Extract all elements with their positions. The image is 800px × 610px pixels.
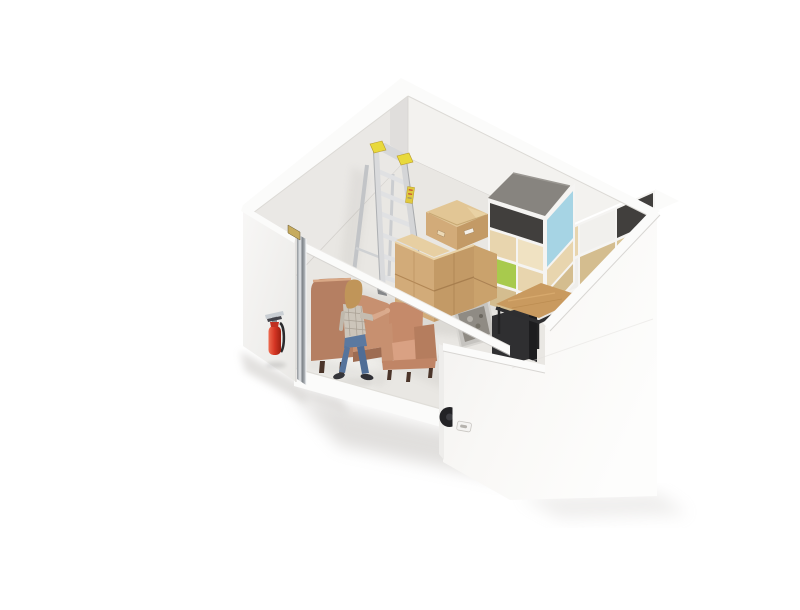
extinguisher-body [269,326,282,355]
wall-latch [456,421,471,432]
small-chair-arm-left [380,323,394,363]
extinguisher-shoulder [270,322,279,327]
person-arm-left [341,313,343,329]
storage-unit-render: 3D cutaway rendering of a small self-sto… [40,16,800,594]
person-hand [385,308,390,313]
extinguisher-shadow [266,362,286,368]
door-chrome-edge [297,234,306,385]
pillar-end-face [439,344,444,460]
small-chair-arm-right [414,324,437,364]
wheel-hub [446,414,453,421]
render-canvas [40,16,800,594]
